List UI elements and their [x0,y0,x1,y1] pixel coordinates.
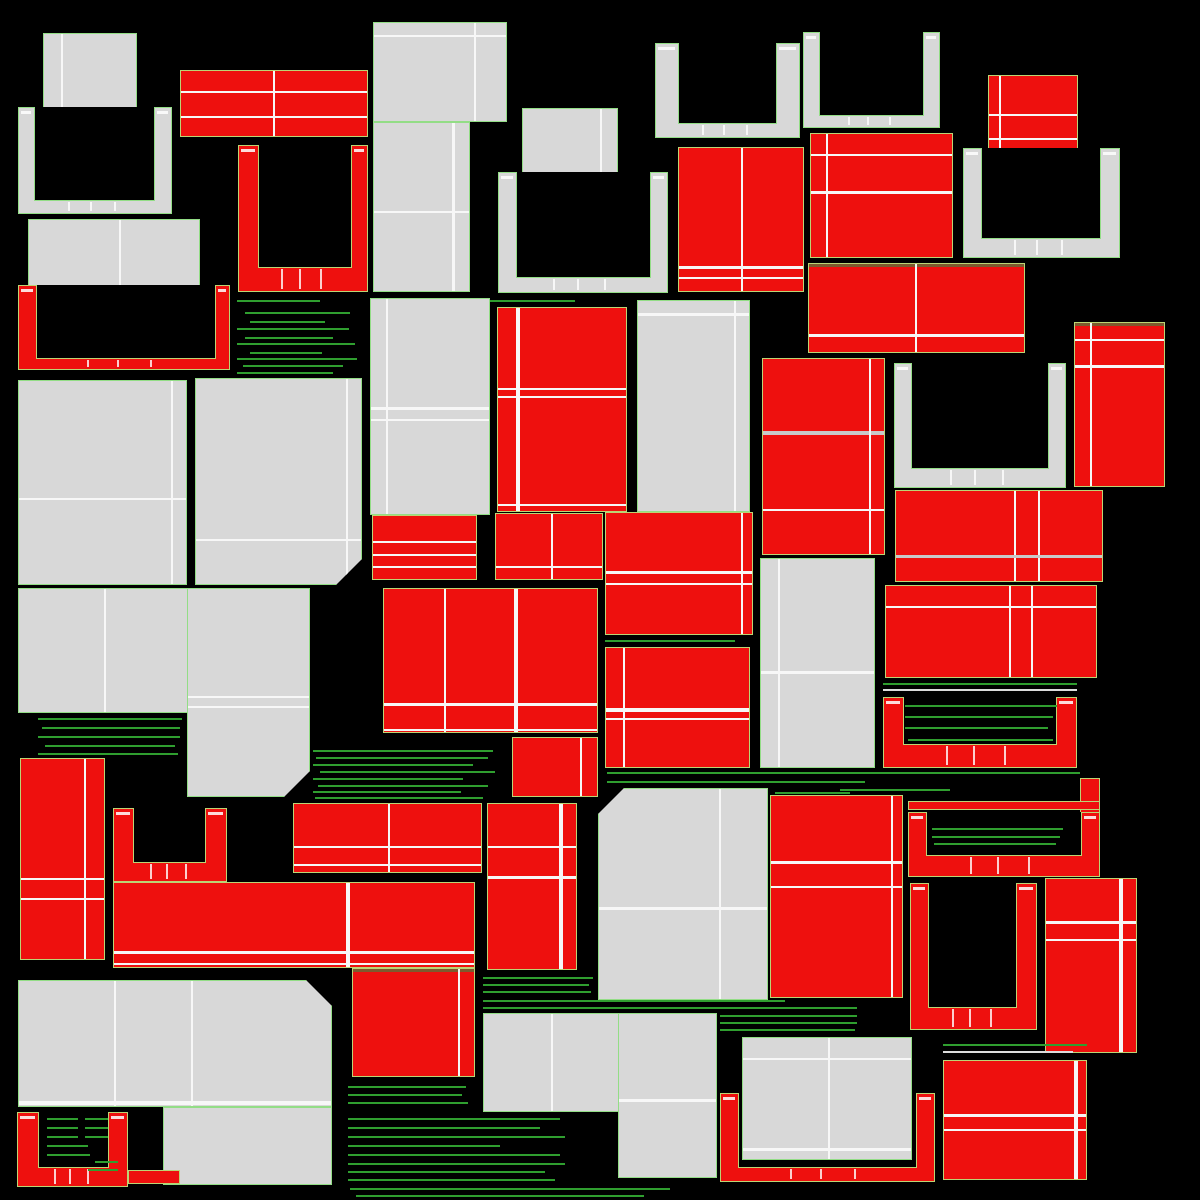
seam-stripe-18 [313,764,473,766]
uv-island-red-bracket-h-bartick-2 [87,1169,89,1184]
uv-island-gray-bracket-f-cavity [911,363,1049,469]
uv-island-red-bracket-g-bartick-1 [820,1169,822,1179]
seam-stripe-59 [943,1044,1087,1046]
uv-island-red-panel-a [180,70,368,137]
seam-stripe-47 [348,1094,462,1096]
uv-island-gray-panel-b [373,22,507,122]
uv-island-red-bracket-c-bartick-2 [1004,746,1006,765]
uv-island-gray-bracket-a-bartick-2 [114,202,116,211]
uv-island-red-panel-k-seamline-0 [373,541,476,543]
uv-island-gray-panel-c [373,122,470,292]
uv-island-red-bracket-g-armcap-0 [723,1097,735,1100]
uv-island-gray-panel-n1 [18,980,332,1107]
seam-stripe-33 [905,727,1048,729]
seam-stripe-60 [943,1051,1073,1053]
uv-island-gray-bracket-e-armcap-1 [1103,152,1116,155]
uv-island-red-panel-g-seamline-1 [869,359,871,554]
uv-island-red-tab-a [512,737,598,797]
uv-island-red-panel-c [678,147,804,292]
uv-island-gray-panel-m-seamline-0 [828,1038,830,1159]
uv-island-red-panel-n-seamline-1 [514,589,518,732]
uv-island-gray-panel-g-seamline-1 [196,539,361,541]
uv-island-gray-bracket-a-armcap-0 [21,111,31,114]
uv-island-gray-panel-m-seamline-1 [743,1058,911,1060]
uv-island-gray-panel-b-seamline-0 [374,35,506,37]
uv-island-red-bracket-e-bartick-2 [1028,857,1030,874]
uv-island-red-panel-e-seamline-2 [809,334,1024,337]
seam-stripe-55 [348,1171,545,1173]
uv-island-red-bracket-d-bartick-1 [166,864,168,879]
uv-island-red-bracket-g-bartick-0 [790,1169,792,1179]
uv-island-red-panel-e [808,263,1025,353]
seam-stripe-43 [720,1015,857,1017]
seam-stripe-49 [348,1118,560,1120]
uv-island-red-panel-v [943,1060,1087,1180]
uv-island-red-bracket-h [17,1112,128,1187]
uv-island-red-bracket-c [883,697,1077,768]
uv-island-red-bracket-d-bartick-2 [185,864,187,879]
uv-island-red-panel-t-seamline-1 [771,886,902,888]
uv-island-red-panel-j-seamline-0 [1009,586,1011,677]
seam-stripe-35 [932,828,1063,830]
seam-stripe-22 [313,791,461,793]
seam-stripe-11 [38,718,182,720]
uv-island-gray-bracket-a [18,107,172,214]
seam-stripe-69 [95,1161,118,1163]
uv-texture-atlas [0,0,1200,1200]
uv-island-red-bracket-b-cavity [36,285,216,359]
uv-island-gray-panel-g-seamline-0 [346,379,348,584]
seam-stripe-21 [318,785,488,787]
uv-island-gray-bracket-d-armcap-0 [806,36,816,39]
uv-island-gray-panel-c-seamline-1 [452,123,455,291]
uv-island-red-panel-p [20,758,105,960]
uv-island-gray-panel-o1-seamline-0 [551,1014,553,1111]
uv-island-gray-panel-h-seamline-1 [371,407,489,410]
uv-island-gray-bracket-f-bartick-1 [974,470,976,485]
seam-stripe-50 [348,1127,540,1129]
uv-island-red-panel-f-seamline-1 [1090,323,1092,486]
uv-island-gray-panel-k2-seamline-0 [188,696,309,698]
uv-island-red-bracket-e-bartick-1 [997,857,999,874]
seam-stripe-5 [237,343,355,345]
seam-stripe-51 [348,1136,565,1138]
uv-island-red-bracket-b-bartick-0 [87,360,89,367]
seam-stripe-1 [245,312,350,314]
uv-island-red-strip-a [908,801,1100,810]
uv-island-red-bracket-f-bartick-1 [969,1009,971,1027]
seam-stripe-34 [908,739,1053,741]
seam-stripe-3 [237,328,349,330]
uv-island-gray-bracket-f-bartick-2 [1002,470,1004,485]
uv-island-red-bracket-d-bartick-0 [150,864,152,879]
uv-island-red-bracket-b [18,285,230,370]
uv-island-red-panel-q [293,803,482,873]
uv-island-red-panel-i [895,490,1103,582]
uv-island-red-panel-s-seamline-1 [114,951,474,954]
uv-island-red-panel-k-seamline-2 [373,566,476,568]
uv-island-gray-bracket-a-bartick-0 [68,202,70,211]
uv-island-red-bracket-d-armcap-0 [116,812,130,815]
uv-island-gray-panel-f [18,380,187,585]
seam-stripe-62 [85,1118,108,1120]
uv-island-gray-bracket-c-armcap-1 [779,47,796,50]
seam-stripe-31 [905,705,1057,707]
uv-island-red-panel-p-seamline-2 [21,898,104,900]
uv-island-red-bracket-c-armcap-1 [1059,701,1073,704]
uv-island-red-panel-o-seamline-1 [606,708,749,712]
seam-stripe-48 [348,1102,468,1104]
uv-island-gray-panel-i [637,300,750,512]
uv-island-gray-bracket-f-bartick-0 [950,470,952,485]
uv-island-red-bracket-a-bartick-1 [299,269,301,289]
uv-island-gray-bracket-c-armcap-0 [658,47,675,50]
uv-island-red-panel-t [770,795,903,998]
uv-island-red-panel-e-seamline-1 [915,264,917,352]
uv-island-red-panel-j-seamline-2 [886,606,1096,608]
uv-island-gray-panel-f-seamline-1 [19,498,186,500]
uv-island-gray-panel-n2 [163,1107,332,1185]
uv-island-gray-bracket-d-bartick-2 [889,117,891,125]
seam-stripe-10 [490,300,575,302]
seam-stripe-2 [250,321,325,323]
seam-stripe-53 [348,1154,560,1156]
uv-island-gray-bracket-b-bartick-0 [553,279,555,290]
seam-stripe-32 [905,716,1053,718]
uv-island-red-bracket-e-armcap-0 [911,816,923,819]
uv-island-gray-bracket-c-bartick-1 [723,125,725,135]
uv-island-red-bracket-a-cavity [258,145,352,268]
uv-island-gray-panel-l [598,788,768,1000]
uv-island-red-panel-v-seamline-2 [944,1129,1086,1131]
seam-stripe-6 [250,352,322,354]
seam-stripe-17 [316,757,488,759]
uv-island-gray-panel-l-seamline-1 [719,789,721,999]
uv-island-gray-bracket-e-bartick-2 [1061,240,1063,255]
uv-island-red-bar-a [128,1170,180,1184]
seam-stripe-41 [483,1000,785,1002]
uv-island-red-panel-s [113,882,475,968]
uv-island-gray-panel-h [370,298,490,515]
uv-island-red-panel-l [495,513,603,580]
uv-island-red-panel-i-seamline-2 [896,555,1102,558]
uv-island-red-tab-b-seamline-1 [458,969,460,1076]
seam-stripe-28 [840,789,950,791]
uv-island-red-bracket-b-armcap-1 [218,289,226,292]
seam-stripe-40 [483,991,591,993]
uv-island-red-panel-v-seamline-1 [944,1114,1086,1117]
uv-island-gray-panel-j [760,558,875,768]
uv-island-red-bracket-a-bartick-2 [320,269,322,289]
uv-island-red-panel-u-seamline-2 [1119,879,1123,1052]
uv-island-red-panel-q-seamline-1 [294,846,481,848]
uv-island-red-panel-d-seamline-1 [811,154,952,156]
uv-island-red-panel-t-seamline-2 [891,796,893,997]
uv-island-red-panel-d-seamline-2 [811,191,952,194]
seam-stripe-23 [315,797,483,799]
seam-stripe-38 [483,977,593,979]
uv-island-red-bracket-d [113,808,227,882]
uv-island-red-bracket-b-bartick-2 [150,360,152,367]
uv-island-gray-panel-k2 [187,588,310,797]
seam-stripe-24 [605,640,735,642]
uv-island-gray-bracket-b-cavity [516,172,651,278]
uv-island-red-bracket-f-armcap-1 [1019,887,1033,890]
seam-stripe-13 [38,736,180,738]
uv-island-red-panel-l-seamline-0 [551,514,553,579]
uv-island-gray-bracket-d [803,32,940,128]
uv-island-red-bracket-a-bartick-0 [281,269,283,289]
uv-island-gray-bracket-b-bartick-1 [577,279,579,290]
seam-stripe-7 [237,358,357,360]
seam-stripe-56 [348,1179,555,1181]
uv-island-red-panel-h [497,307,627,512]
uv-island-red-bracket-h-bartick-0 [54,1169,56,1184]
uv-island-gray-bracket-f-armcap-0 [897,367,908,370]
uv-island-red-panel-c-seamline-2 [741,148,743,291]
uv-island-gray-panel-g [195,378,362,585]
seam-stripe-14 [45,745,175,747]
uv-island-red-panel-j-seamline-1 [1031,586,1033,677]
uv-island-red-panel-i-seamline-0 [1014,491,1016,581]
uv-island-gray-panel-h-seamline-2 [371,419,489,421]
uv-island-gray-bracket-b-armcap-0 [501,176,513,179]
uv-island-red-panel-p-seamline-1 [21,878,104,880]
seam-stripe-42 [483,1007,857,1009]
uv-island-gray-bracket-e-cavity [981,148,1101,239]
seam-stripe-30 [883,689,1077,691]
uv-island-gray-bracket-b-bartick-2 [604,279,606,290]
uv-island-gray-bracket-d-bartick-0 [848,117,850,125]
uv-island-red-panel-h-seamline-3 [498,504,626,506]
uv-island-red-panel-r-seamline-0 [559,804,563,969]
uv-island-red-panel-s-seamline-2 [114,963,474,965]
uv-island-red-panel-k-seamline-1 [373,554,476,556]
seam-stripe-64 [85,1127,108,1129]
uv-island-red-panel-m [605,512,753,635]
uv-island-red-panel-t-seamline-0 [771,861,902,864]
uv-island-red-bracket-e-bartick-0 [970,857,972,874]
uv-island-red-panel-u [1045,878,1137,1053]
uv-island-gray-bracket-c-bartick-2 [746,125,748,135]
uv-island-red-panel-q-seamline-2 [294,864,481,866]
seam-stripe-15 [38,753,178,755]
uv-island-red-panel-n [383,588,598,733]
seam-stripe-66 [85,1136,108,1138]
uv-island-gray-bracket-c-bartick-0 [702,125,704,135]
uv-island-red-panel-q-seamline-0 [388,804,390,872]
uv-island-red-bracket-a [238,145,368,292]
uv-island-red-bracket-d-cavity [133,808,206,863]
uv-island-gray-bracket-a-armcap-1 [157,111,168,114]
uv-island-red-panel-j [885,585,1097,678]
seam-stripe-29 [883,683,1077,685]
uv-island-gray-panel-o2-seamline-0 [619,1099,716,1102]
uv-island-gray-panel-i-seamline-1 [734,301,736,511]
uv-island-red-panel-b-seamline-2 [989,138,1077,140]
uv-island-gray-panel-k2-seamline-1 [188,706,309,708]
uv-island-gray-bracket-e-armcap-0 [966,152,978,155]
uv-island-red-panel-d-seamline-0 [826,134,828,257]
uv-island-gray-panel-m-seamline-2 [743,1148,911,1151]
uv-island-gray-bracket-d-cavity [819,32,924,116]
uv-island-gray-bracket-d-bartick-1 [867,117,869,125]
seam-stripe-25 [607,772,1080,774]
uv-island-red-panel-r [487,803,577,970]
uv-island-gray-panel-l-seamline-0 [599,907,767,910]
seam-stripe-46 [348,1086,466,1088]
uv-island-red-bracket-h-armcap-1 [111,1116,124,1119]
uv-island-gray-panel-o2 [618,1013,717,1178]
seam-stripe-16 [313,750,493,752]
uv-island-red-bracket-h-bartick-1 [69,1169,71,1184]
uv-island-red-panel-p-seamline-0 [84,759,86,959]
uv-island-red-panel-f-seamline-2 [1075,339,1164,341]
seam-stripe-8 [243,365,343,367]
uv-island-gray-panel-n1-seamline-1 [191,981,193,1106]
uv-island-red-panel-d [810,133,953,258]
uv-island-gray-panel-f-seamline-0 [171,381,173,584]
uv-island-red-bracket-e-cavity [926,812,1082,856]
uv-island-red-bracket-d-armcap-1 [208,812,223,815]
uv-island-gray-panel-j-seamline-1 [778,559,780,767]
uv-island-red-panel-n-seamline-2 [384,703,597,706]
uv-island-red-panel-h-seamline-1 [498,388,626,390]
uv-island-red-panel-a-seamline-2 [273,71,275,136]
uv-island-red-panel-k [372,515,477,580]
seam-stripe-4 [245,337,333,339]
seam-stripe-26 [607,781,865,783]
uv-island-gray-panel-n1-seamline-0 [114,981,116,1106]
uv-island-red-panel-r-seamline-2 [488,876,576,879]
uv-island-red-bracket-e-armcap-1 [1084,816,1096,819]
uv-island-red-bracket-h-armcap-0 [20,1116,35,1119]
uv-island-red-panel-s-seamline-0 [346,883,350,967]
uv-island-red-bracket-f [910,883,1037,1030]
uv-island-red-bracket-f-cavity [928,883,1017,1008]
uv-island-red-bracket-f-armcap-0 [913,887,925,890]
uv-island-gray-panel-i-seamline-0 [638,313,749,316]
seam-stripe-9 [237,372,333,374]
seam-stripe-37 [934,843,1056,845]
seam-stripe-70 [88,1169,118,1171]
uv-island-gray-panel-m [742,1037,912,1160]
uv-island-red-bracket-f-bartick-2 [990,1009,992,1027]
seam-stripe-19 [320,771,495,773]
seam-stripe-44 [720,1022,857,1024]
seam-stripe-52 [348,1145,500,1147]
seam-stripe-0 [237,300,320,302]
uv-island-red-panel-i-seamline-1 [1038,491,1040,581]
uv-island-red-panel-g-seamline-2 [763,509,884,511]
uv-island-red-panel-g [762,358,885,555]
uv-island-red-bracket-a-armcap-1 [354,149,364,152]
uv-island-red-tab-a-seamline-0 [580,738,582,796]
uv-island-gray-bracket-e [963,148,1120,258]
uv-island-red-bracket-b-bartick-1 [117,360,119,367]
uv-island-gray-bracket-e-bartick-0 [1014,240,1016,255]
seam-stripe-67 [47,1145,88,1147]
uv-island-red-tab-b-seamline-0 [353,969,474,972]
uv-island-red-panel-f [1074,322,1165,487]
uv-island-gray-bracket-a-cavity [34,107,155,201]
seam-stripe-20 [313,778,463,780]
uv-island-red-panel-v-seamline-0 [1074,1061,1078,1179]
seam-stripe-39 [483,984,589,986]
uv-island-red-panel-n-seamline-3 [384,729,597,731]
uv-island-red-panel-f-seamline-3 [1075,365,1164,368]
seam-stripe-45 [720,1029,855,1031]
uv-island-red-panel-r-seamline-1 [488,846,576,848]
seam-stripe-12 [42,727,180,729]
uv-island-red-panel-l-seamline-1 [496,566,602,568]
uv-island-red-panel-m-seamline-1 [606,571,752,574]
uv-island-gray-bracket-d-armcap-1 [926,36,936,39]
uv-island-gray-bracket-a-bartick-1 [90,202,92,211]
seam-stripe-54 [348,1163,565,1165]
uv-island-red-bracket-g-armcap-1 [919,1097,931,1100]
uv-island-red-bracket-c-bartick-1 [973,746,975,765]
uv-island-gray-bracket-e-bartick-1 [1036,240,1038,255]
uv-island-gray-panel-b-seamline-1 [474,23,476,121]
uv-island-red-bracket-h-cavity [38,1112,109,1168]
uv-island-red-panel-m-seamline-2 [606,583,752,585]
uv-island-gray-bracket-b [498,172,668,293]
seam-stripe-61 [47,1118,78,1120]
seam-stripe-65 [47,1136,78,1138]
uv-island-gray-panel-k1-seamline-0 [104,589,106,712]
seam-stripe-36 [932,836,1060,838]
uv-island-red-panel-h-seamline-0 [516,308,520,511]
uv-island-red-bracket-a-armcap-0 [241,149,255,152]
uv-island-red-panel-o [605,647,750,768]
uv-island-red-panel-h-seamline-2 [498,396,626,398]
uv-island-gray-bracket-f-armcap-1 [1051,367,1062,370]
uv-island-red-panel-b-seamline-1 [989,114,1077,116]
uv-island-red-bracket-c-armcap-0 [886,701,900,704]
uv-island-red-bracket-b-armcap-0 [21,289,33,292]
seam-stripe-63 [47,1127,78,1129]
uv-island-red-panel-o-seamline-2 [606,718,749,720]
uv-island-red-bracket-g-bartick-2 [854,1169,856,1179]
uv-island-red-bracket-f-bartick-0 [952,1009,954,1027]
uv-island-red-panel-n-seamline-0 [444,589,446,732]
seam-stripe-57 [350,1188,670,1190]
uv-island-gray-panel-n1-seamline-2 [19,1101,331,1105]
uv-island-gray-bracket-c [655,43,800,138]
uv-island-red-panel-f-seamline-0 [1075,323,1164,326]
uv-island-red-tab-b [352,968,475,1077]
uv-island-gray-bracket-b-armcap-1 [653,176,664,179]
seam-stripe-27 [775,792,850,794]
seam-stripe-58 [356,1195,644,1197]
seam-stripe-68 [47,1154,90,1156]
uv-island-gray-bracket-c-cavity [678,43,777,124]
uv-island-gray-bracket-f [894,363,1066,488]
uv-island-red-bracket-c-bartick-0 [946,746,948,765]
uv-island-red-panel-g-seamline-0 [763,431,884,435]
